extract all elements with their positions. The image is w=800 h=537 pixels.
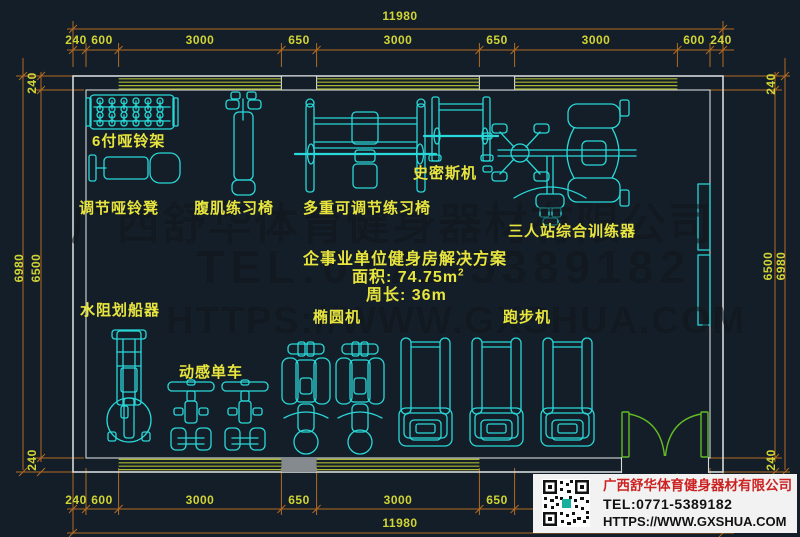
- label-multi-bench: 多重可调节练习椅: [303, 197, 431, 218]
- dim-top-seg: 650: [486, 33, 508, 47]
- dim-right-inner: 6500: [761, 252, 775, 281]
- dim-left-bottom: 240: [25, 449, 39, 471]
- label-water-rower: 水阻划船器: [80, 299, 160, 320]
- solution-area-sup: 2: [458, 268, 465, 279]
- double-door: [621, 412, 709, 474]
- dim-bottom-seg: 600: [91, 493, 113, 507]
- dim-total-bottom: 11980: [382, 516, 417, 530]
- dim-right-bottom: 240: [764, 449, 778, 471]
- label-ab-chair: 腹肌练习椅: [194, 197, 274, 218]
- dumbbell-rack-drawing: [86, 95, 178, 129]
- qr-code: [542, 479, 590, 527]
- wall-column: [281, 76, 316, 90]
- info-box-url: HTTPS://WWW.GXSHUA.COM: [603, 513, 795, 531]
- treadmill-drawing: [399, 338, 452, 446]
- label-treadmill: 跑步机: [503, 306, 551, 327]
- dim-bottom-seg: 3000: [186, 493, 215, 507]
- cad-floor-plan: 广西舒华体育健身器材有限公司 TEL:0771-5389182 HTTPS://…: [0, 0, 800, 537]
- dim-left-outer: 6980: [12, 254, 26, 283]
- dim-top-seg: 240: [710, 33, 732, 47]
- dim-bottom-seg: 240: [65, 493, 87, 507]
- label-spin-bike: 动感单车: [179, 361, 243, 382]
- dim-bottom-seg: 650: [486, 493, 508, 507]
- dim-top-seg: 3000: [582, 33, 611, 47]
- label-elliptical: 椭圆机: [313, 306, 361, 327]
- dim-bottom-seg: 3000: [384, 493, 413, 507]
- adjustable-bench-drawing: [89, 153, 180, 183]
- dim-top-seg: 3000: [384, 33, 413, 47]
- dim-left-top: 240: [25, 72, 39, 94]
- label-smith-machine: 史密斯机: [413, 162, 477, 183]
- label-adjustable-bench: 调节哑铃凳: [79, 197, 159, 218]
- dim-top-seg: 3000: [186, 33, 215, 47]
- treadmill-drawing: [470, 338, 523, 446]
- dim-right-outer: 6980: [774, 252, 788, 281]
- elliptical-drawing: [336, 342, 384, 454]
- treadmill-drawing: [541, 338, 594, 446]
- label-dumbbell-rack: 6付哑铃架: [92, 130, 165, 151]
- water-rower-drawing: [107, 330, 151, 442]
- dim-total-top: 11980: [382, 9, 417, 23]
- info-box-tel: TEL:0771-5389182: [603, 495, 795, 513]
- qr-center-logo: [562, 499, 571, 508]
- company-info-box: 广西舒华体育健身器材有限公司 TEL:0771-5389182 HTTPS://…: [533, 474, 797, 533]
- info-box-company: 广西舒华体育健身器材有限公司: [603, 477, 795, 495]
- spin-bike-drawing: [222, 380, 268, 450]
- solution-perimeter: 周长: 36m: [366, 281, 447, 305]
- dim-left-inner: 6500: [29, 254, 43, 283]
- dim-top-seg: 650: [288, 33, 310, 47]
- wall-column: [281, 458, 316, 472]
- wall-column: [479, 76, 514, 90]
- dim-top-seg: 600: [91, 33, 113, 47]
- watermark-url: HTTPS://WWW.GXSHUA.COM: [166, 300, 746, 343]
- dim-bottom-seg: 650: [288, 493, 310, 507]
- elliptical-drawing: [282, 342, 330, 454]
- smith-machine-drawing: [424, 97, 498, 161]
- dim-top-seg: 240: [65, 33, 87, 47]
- dim-top-seg: 600: [683, 33, 705, 47]
- spin-bike-drawing: [168, 380, 214, 450]
- label-three-person-station: 三人站综合训练器: [508, 220, 636, 241]
- dim-right-top: 240: [764, 73, 778, 95]
- dumbbells: [97, 98, 163, 126]
- ab-chair-drawing: [226, 92, 261, 195]
